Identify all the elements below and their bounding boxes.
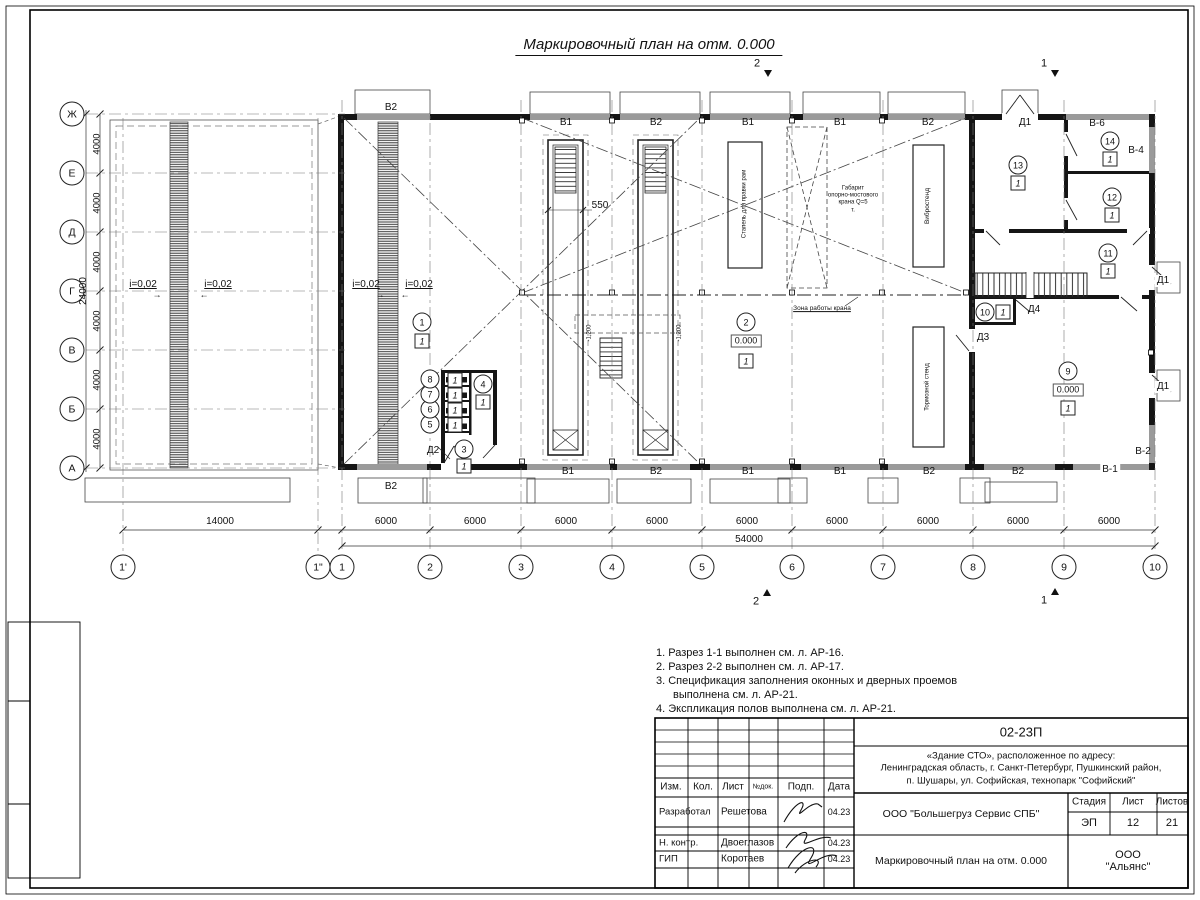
dim-label: 4000	[91, 310, 102, 331]
grid-axis-circle: 1'	[111, 555, 136, 580]
plan-label: Д1	[1155, 275, 1171, 287]
dim-total-label: 54000	[735, 534, 763, 546]
slope-arrow: ←	[401, 290, 410, 301]
plan-label: В2	[650, 117, 662, 129]
room-number: 3	[455, 440, 474, 459]
tb-project: «Здание СТО», расположенное по адресу: Л…	[854, 750, 1188, 787]
plan-label: В-4	[1128, 145, 1144, 157]
dim-label: 6000	[736, 516, 758, 528]
floor-type-mark: 1	[1103, 152, 1118, 167]
dim-label: 6000	[826, 516, 848, 528]
grid-axis-circle: Д	[60, 220, 85, 245]
tb-role: Разработал	[659, 807, 711, 818]
tb-col-data: Дата	[828, 782, 850, 793]
grid-axis-circle: В	[60, 338, 85, 363]
plan-label: В1	[560, 117, 572, 129]
plan-label: В2	[650, 466, 662, 478]
plan-label: В1	[742, 466, 754, 478]
grid-axis-circle: 10	[1143, 555, 1168, 580]
tb-name: Решетова	[721, 807, 767, 818]
slope-arrow: →	[376, 290, 385, 301]
tb-date: 04.23	[828, 854, 851, 864]
notes: 1. Разрез 1-1 выполнен см. л. АР-16.2. Р…	[656, 646, 1005, 716]
plan-label: В2	[1012, 466, 1024, 478]
tb-doc-number: 02-23П	[1000, 725, 1043, 740]
dim-label: 4000	[91, 133, 102, 154]
stairs	[975, 272, 1087, 298]
plan-label: Д1	[1155, 381, 1171, 393]
room-number: 1	[413, 313, 432, 332]
dim-label: 4000	[91, 428, 102, 449]
grid-axis-circle: Ж	[60, 102, 85, 127]
plan-label: В1	[834, 466, 846, 478]
ramp-hatch-strip	[170, 122, 188, 468]
room-number: 8	[421, 370, 440, 389]
dim-label: 4000	[91, 251, 102, 272]
dim-label: 6000	[646, 516, 668, 528]
plan-label: В2	[385, 102, 397, 114]
equipment-label: -1,200	[676, 324, 683, 341]
floor-type-mark: 1	[448, 418, 463, 433]
note-line: 1. Разрез 1-1 выполнен см. л. АР-16.	[656, 646, 1005, 660]
tb-stage-label: Стадия	[1072, 797, 1106, 808]
section-arrow	[1051, 70, 1059, 77]
tb-company: ООО "Большегруз Сервис СПБ"	[883, 808, 1040, 820]
plan-label: Д1	[1019, 117, 1031, 129]
crane-clearance	[787, 127, 827, 288]
floor-type-mark: 1	[1011, 176, 1026, 191]
dim-total-label: 24000	[78, 277, 90, 305]
floor-type-mark: 1	[996, 305, 1011, 320]
grid-axis-circle: 1	[330, 555, 355, 580]
tb-col-ndok: №док.	[753, 784, 774, 791]
room-number: 11	[1099, 244, 1118, 263]
plan-label: Зона работы крана	[793, 305, 851, 313]
tb-date: 04.23	[828, 807, 851, 817]
tb-col-list: Лист	[722, 782, 744, 793]
dim-label: 14000	[206, 516, 234, 528]
grid-axis-circle: 6	[780, 555, 805, 580]
tb-sheets-value: 21	[1166, 817, 1178, 829]
equipment-label: -1,200	[586, 324, 593, 341]
tb-sheet-title: Маркировочный план на отм. 0.000	[875, 855, 1047, 867]
tb-role: Н. контр.	[659, 838, 698, 849]
dim-label: 6000	[555, 516, 577, 528]
crane-clearance-label: Габарит опорно-мостового крана Q=5 т.	[828, 186, 878, 215]
grid-axis-circle: 2	[418, 555, 443, 580]
plan-label: В-6	[1089, 118, 1105, 130]
room-number: 14	[1101, 132, 1120, 151]
plan-label: В2	[385, 481, 397, 493]
plan-label: 550	[592, 200, 609, 212]
grid-axis-circle: А	[60, 456, 85, 481]
tb-sheet-value: 12	[1127, 817, 1139, 829]
plan-label: В-2	[1135, 446, 1151, 458]
section-mark: 2	[754, 57, 760, 70]
note-line: 2. Разрез 2-2 выполнен см. л. АР-17.	[656, 660, 1005, 674]
floor-type-mark: 1	[739, 354, 754, 369]
plan-label: Д2	[427, 445, 439, 457]
tb-sheet-label: Лист	[1122, 797, 1144, 808]
dim-label: 6000	[375, 516, 397, 528]
floor-type-mark: 1	[1061, 401, 1076, 416]
section-arrow	[1051, 588, 1059, 595]
equipment-label: Вибростенд	[924, 188, 932, 224]
equipment	[728, 127, 944, 447]
floor-type-mark: 1	[476, 395, 491, 410]
tb-name: Коротаев	[721, 854, 764, 865]
room-number: 4	[474, 375, 493, 394]
section-mark: 2	[753, 595, 759, 608]
grid-axis-circle: Е	[60, 161, 85, 186]
grid-axis-circle: 1"	[306, 555, 331, 580]
drawing-title: Маркировочный план на отм. 0.000	[515, 36, 782, 56]
room-number: 2	[737, 313, 756, 332]
grid-axis-circle: 8	[961, 555, 986, 580]
note-line: 3. Спецификация заполнения оконных и две…	[656, 674, 1005, 702]
room-number: 9	[1059, 362, 1078, 381]
elevation-mark: 0.000	[1053, 384, 1084, 397]
tb-col-kol: Кол.	[693, 782, 713, 793]
dim-label: 6000	[1007, 516, 1029, 528]
grid-axis-circle: 9	[1052, 555, 1077, 580]
room-number: 10	[976, 303, 995, 322]
dim-label: 6000	[917, 516, 939, 528]
grid-axis-circle: Б	[60, 397, 85, 422]
note-line: 4. Экспликация полов выполнена см. л. АР…	[656, 702, 1005, 716]
plan-label: Д4	[1028, 304, 1040, 316]
drawing-sheet: Маркировочный план на отм. 0.000 1'1"123…	[0, 0, 1200, 900]
plan-label: В2	[923, 466, 935, 478]
dim-label: 4000	[91, 192, 102, 213]
grid-axis-circle: 3	[509, 555, 534, 580]
floor-type-mark: 1	[457, 459, 472, 474]
floor-type-mark: 1	[448, 388, 463, 403]
grid-axis-circle: 4	[600, 555, 625, 580]
plan-label: В2	[922, 117, 934, 129]
section-arrow	[763, 589, 771, 596]
section-mark: 1	[1041, 594, 1047, 607]
section-arrow	[764, 70, 772, 77]
grid-axis-circle: 7	[871, 555, 896, 580]
tb-stage-value: ЭП	[1081, 817, 1097, 829]
tb-date: 04.23	[828, 838, 851, 848]
equipment-label: Стапель для правки рам	[741, 170, 748, 239]
elevation-mark: 0.000	[731, 335, 762, 348]
plan-label: В1	[562, 466, 574, 478]
section-mark: 1	[1041, 57, 1047, 70]
tb-col-podp: Подп.	[788, 782, 815, 793]
tb-col-izm: Изм.	[660, 782, 681, 793]
floor-type-mark: 1	[415, 334, 430, 349]
floor-type-mark: 1	[448, 373, 463, 388]
room-number: 12	[1103, 188, 1122, 207]
left-canopy-structure	[110, 116, 340, 470]
floor-type-mark: 1	[1101, 264, 1116, 279]
dim-label: 4000	[91, 369, 102, 390]
equipment-label: Тормозной стенд	[924, 363, 931, 411]
tb-name: Двоеглазов	[721, 838, 774, 849]
slope-arrow: →	[153, 290, 162, 301]
inspection-pits	[543, 135, 680, 460]
dim-label: 6000	[1098, 516, 1120, 528]
tb-sheets-label: Листов	[1156, 797, 1189, 808]
plan-label: В1	[834, 117, 846, 129]
plan-label: В-1	[1100, 464, 1120, 476]
plan-label: В1	[742, 117, 754, 129]
floor-type-mark: 1	[1105, 208, 1120, 223]
room-number: 13	[1009, 156, 1028, 175]
slope-arrow: ←	[200, 290, 209, 301]
tb-org: ООО "Альянс"	[1092, 849, 1164, 873]
floor-type-mark: 1	[448, 403, 463, 418]
grid-axis-circle: 5	[690, 555, 715, 580]
plan-label: Д3	[977, 332, 989, 344]
tb-role: ГИП	[659, 854, 678, 865]
dim-label: 6000	[464, 516, 486, 528]
